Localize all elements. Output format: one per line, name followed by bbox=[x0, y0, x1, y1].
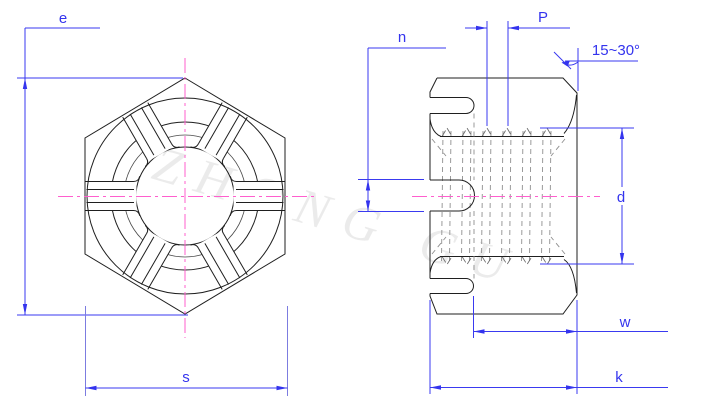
watermark-text: ZHONG GU bbox=[147, 135, 529, 297]
dim-label-e: e bbox=[59, 10, 67, 27]
slot-middle bbox=[430, 180, 474, 211]
dim-label-d: d bbox=[617, 189, 625, 206]
technical-drawing-page: ZHONG GU bbox=[0, 0, 704, 414]
dimension-s: s bbox=[86, 306, 288, 396]
dim-label-s: s bbox=[182, 369, 190, 386]
dimension-n: n bbox=[358, 29, 446, 212]
dim-label-w: w bbox=[619, 314, 631, 331]
watermark: ZHONG GU bbox=[147, 135, 529, 297]
castle-nut-drawing: ZHONG GU bbox=[0, 0, 704, 414]
dimension-p: P bbox=[465, 9, 570, 126]
dim-label-k: k bbox=[615, 369, 623, 386]
dimension-chamfer-angle: 15~30° bbox=[554, 42, 640, 91]
slot-top bbox=[430, 98, 474, 114]
corner-chamfer-arcs bbox=[564, 95, 577, 293]
dim-label-n: n bbox=[398, 29, 406, 46]
dimension-w: w bbox=[474, 296, 669, 338]
dim-label-p: P bbox=[538, 9, 548, 26]
dim-label-angle: 15~30° bbox=[592, 42, 640, 59]
